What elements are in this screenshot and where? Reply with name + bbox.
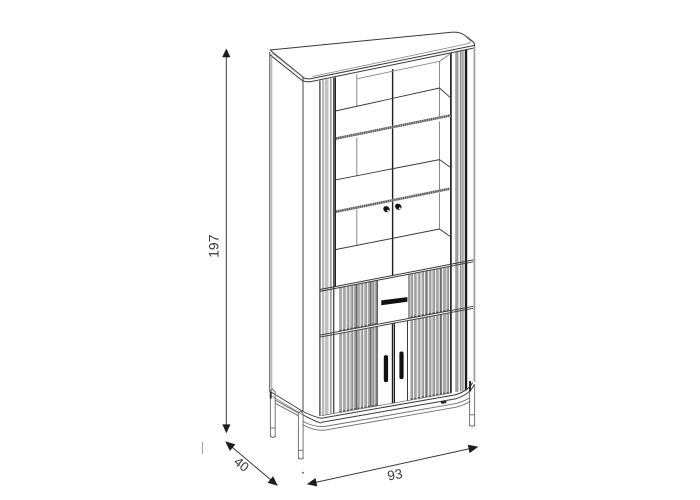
svg-text:197: 197 [205, 234, 221, 258]
svg-text:93: 93 [386, 466, 404, 484]
